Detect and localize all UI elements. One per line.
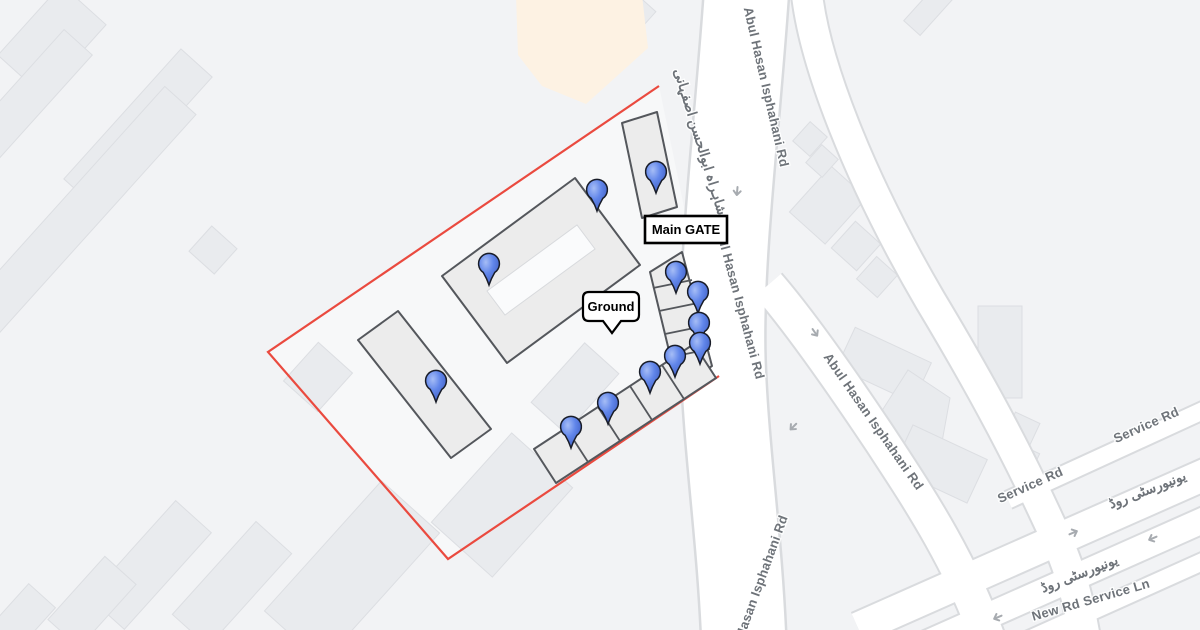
- map-stage: Abul Hasan Isphahani Rd Abul Hasan Ispha…: [0, 0, 1200, 630]
- map-canvas[interactable]: Abul Hasan Isphahani Rd Abul Hasan Ispha…: [0, 0, 1200, 630]
- ground-text: Ground: [588, 299, 635, 314]
- main-gate-label[interactable]: Main GATE: [645, 216, 727, 243]
- main-gate-text: Main GATE: [652, 222, 721, 237]
